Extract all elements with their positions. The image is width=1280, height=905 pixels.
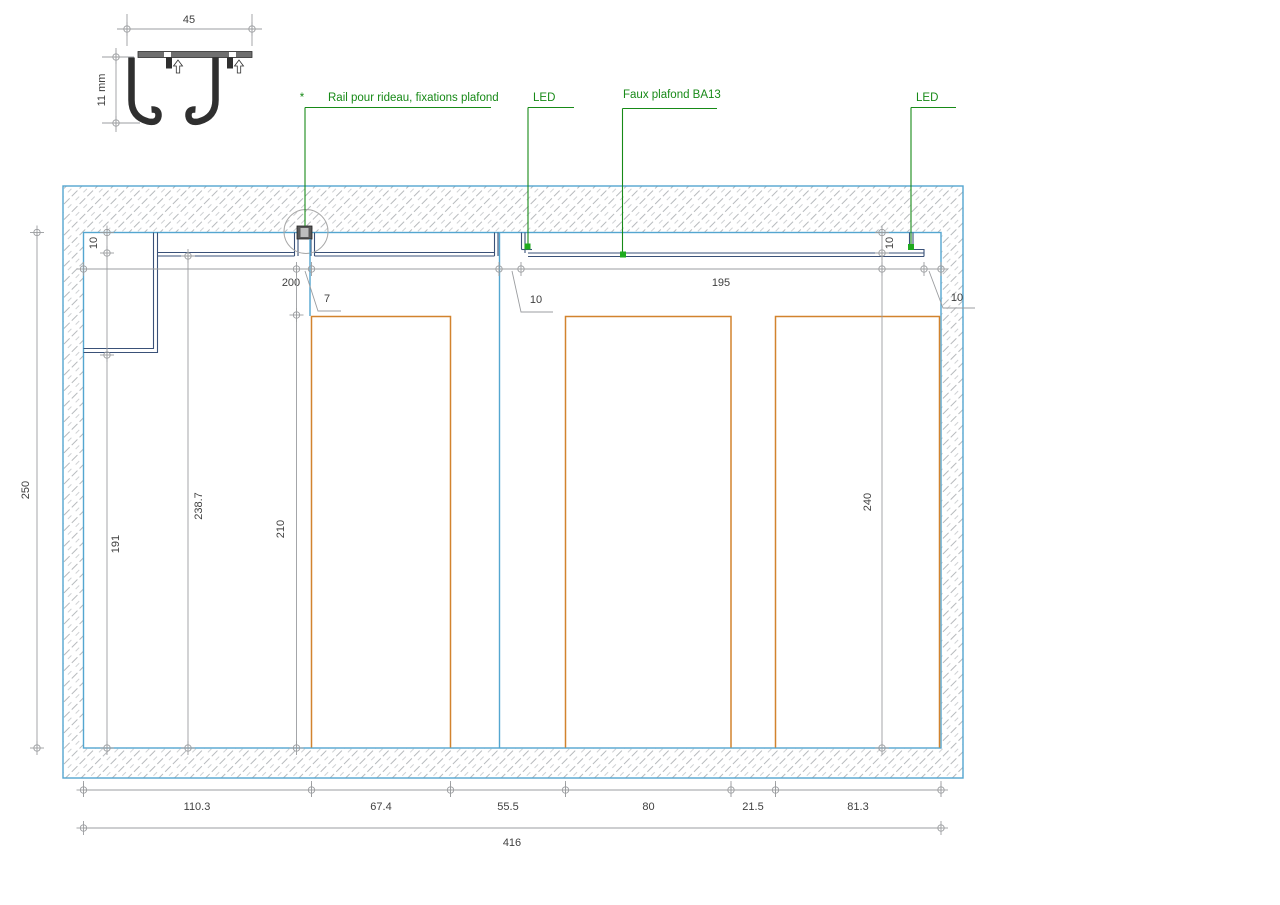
detail-width-dimension: 45 [117, 14, 262, 46]
dim-h-240: 240 [862, 493, 874, 511]
dim-w-total-416: 416 [503, 837, 521, 849]
section-drawing: 45 11 mm [0, 0, 1280, 905]
dim-room-height-250: 250 [20, 481, 32, 499]
dim-h-210: 210 [275, 520, 287, 538]
dim-w-55-5: 55.5 [497, 801, 518, 813]
screw-arrow-icon [174, 60, 183, 73]
dim-h-191: 191 [110, 535, 122, 553]
room-interior [84, 233, 942, 749]
dim-rail-gap-7: 7 [324, 293, 330, 305]
dim-w-21-5: 21.5 [742, 801, 763, 813]
faux-plafond-marker-dot [620, 252, 626, 258]
rail-fixing-tab-right [227, 58, 233, 69]
bottom-dimension-chain: 110.3 67.4 55.5 80 21.5 81.3 [77, 781, 949, 813]
led-strip-right [908, 244, 914, 250]
dim-ceiling-span-195: 195 [712, 277, 730, 289]
dim-drop-right-10: 10 [884, 237, 896, 249]
callout-faux-plafond-label: Faux plafond BA13 [623, 89, 721, 101]
rail-plate-slot-right [229, 52, 236, 57]
rail-plate-slot-left [164, 52, 171, 57]
rail-channel-right-wall [188, 58, 215, 122]
rail-profile-shape [132, 52, 253, 122]
callout-led-right-label: LED [916, 92, 938, 104]
dim-cove-gap-mid-10: 10 [530, 294, 542, 306]
callout-bullet: * [300, 92, 305, 104]
dim-drop-left-10: 10 [88, 237, 100, 249]
dim-w-110-3: 110.3 [184, 801, 211, 813]
rail-profile-detail: 45 11 mm [96, 14, 262, 132]
callout-rail-label: Rail pour rideau, fixations plafond [328, 92, 499, 104]
rail-fixing-tab-left [166, 58, 172, 69]
rail-cavity [301, 228, 309, 237]
dim-w-67-4: 67.4 [370, 801, 391, 813]
dim-offset-200: 200 [282, 277, 300, 289]
dim-w-80: 80 [642, 801, 654, 813]
led-strip-left [525, 244, 531, 250]
detail-width-label: 45 [183, 14, 195, 26]
detail-height-label: 11 mm [96, 74, 108, 107]
overall-width-dimension: 416 [77, 821, 949, 849]
dim-w-81-3: 81.3 [847, 801, 868, 813]
dim-h-238-7: 238.7 [193, 492, 205, 520]
drawing-canvas: 45 11 mm [0, 0, 1280, 905]
dim-cove-gap-right-10: 10 [951, 292, 963, 304]
rail-channel-left-wall [132, 58, 159, 122]
screw-arrow-icon [235, 60, 244, 73]
callout-led-left-label: LED [533, 92, 555, 104]
